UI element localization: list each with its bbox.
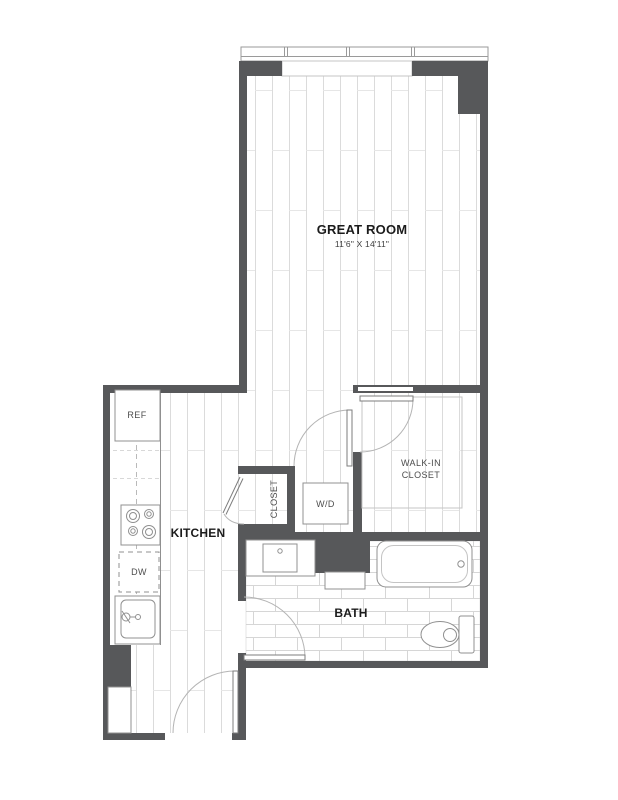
bath-niche <box>325 572 365 589</box>
entry-shaft-box <box>108 687 131 733</box>
bathtub <box>377 541 472 587</box>
floor-plan-page: REF DW W/D CLOSET WALK-IN <box>0 0 618 800</box>
closet-label: CLOSET <box>269 480 279 519</box>
wall-closet-right <box>287 466 295 532</box>
wall-bath-bottom <box>238 661 488 668</box>
walk-in-door-header <box>358 387 413 391</box>
wall-sink-jog <box>105 645 131 687</box>
bath-vanity <box>246 540 315 576</box>
bath-label: BATH <box>334 606 367 620</box>
wall-bottom-left <box>103 733 165 740</box>
wall-walk-in-left <box>353 452 362 532</box>
walk-in-closet-label-line1: WALK-IN <box>401 458 441 468</box>
dishwasher-label: DW <box>131 567 147 577</box>
wall-bath-left <box>238 527 246 601</box>
window-sill <box>282 61 412 76</box>
wall-entry-right <box>238 666 246 740</box>
window-frame <box>241 47 488 61</box>
floor-plan-svg: REF DW W/D CLOSET WALK-IN <box>0 0 618 800</box>
great-room-label: GREAT ROOM <box>317 222 408 237</box>
wall-great-room-left <box>239 61 247 393</box>
kitchen-label: KITCHEN <box>171 526 226 540</box>
wall-closet-top <box>238 466 295 474</box>
great-room-dimensions: 11'6" X 14'11" <box>335 239 389 249</box>
wall-right <box>480 76 488 668</box>
wall-top-right-block <box>412 61 488 76</box>
walk-in-closet-label-line2: CLOSET <box>402 470 441 480</box>
stove <box>121 505 160 545</box>
wall-bath-block <box>315 532 370 573</box>
refrigerator-label: REF <box>127 410 146 420</box>
wall-top-left-block <box>241 61 282 76</box>
kitchen-sink <box>115 596 160 644</box>
washer-dryer-label: W/D <box>316 499 335 509</box>
